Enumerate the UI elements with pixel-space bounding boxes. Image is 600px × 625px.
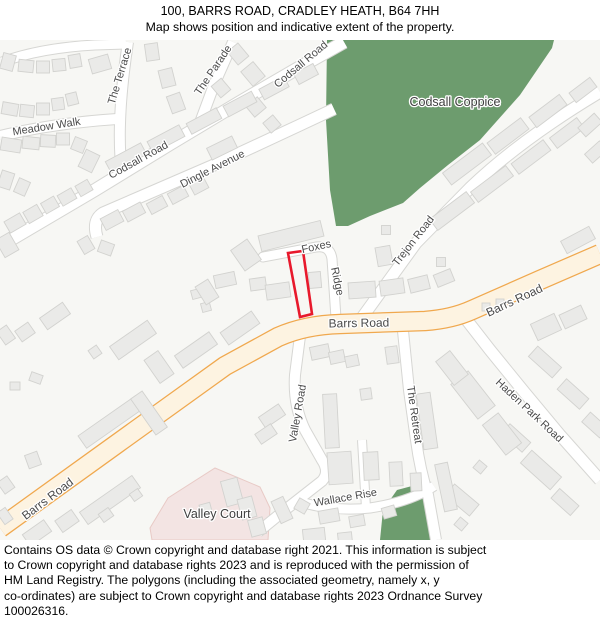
road-label-valley-court: Valley Court <box>183 507 251 521</box>
building <box>40 135 56 148</box>
page-subtitle: Map shows position and indicative extent… <box>0 19 600 35</box>
copyright-line: co-ordinates) are subject to Crown copyr… <box>4 589 596 604</box>
map-canvas: The TerraceThe ParadeMeadow WalkCodsall … <box>0 40 600 540</box>
building <box>22 136 40 150</box>
building <box>0 137 22 153</box>
building <box>302 527 325 540</box>
building <box>410 473 422 492</box>
building <box>51 97 65 111</box>
building <box>349 514 366 527</box>
building <box>328 350 345 365</box>
building <box>57 133 70 145</box>
building <box>144 43 159 62</box>
building <box>337 532 352 540</box>
building <box>379 278 405 296</box>
copyright-footer: Contains OS data © Crown copyright and d… <box>0 540 600 619</box>
building <box>344 354 359 367</box>
building <box>65 92 79 106</box>
building <box>308 272 321 289</box>
building <box>52 58 66 71</box>
report-header: 100, BARRS ROAD, CRADLEY HEATH, B64 7HH … <box>0 0 600 40</box>
building <box>10 382 20 390</box>
road-label-barrs-road: Barrs Road <box>328 315 389 330</box>
building <box>323 394 340 449</box>
building <box>375 245 393 266</box>
building <box>265 282 291 300</box>
building <box>1 102 19 117</box>
property-map-report: { "header": { "title": "100, BARRS ROAD,… <box>0 0 600 625</box>
road-label-codsall-coppice: Codsall Coppice <box>409 95 500 109</box>
street-map: The TerraceThe ParadeMeadow WalkCodsall … <box>0 40 600 540</box>
copyright-line: to Crown copyright and database rights 2… <box>4 558 596 573</box>
building <box>382 226 391 235</box>
building <box>348 281 376 299</box>
building <box>385 346 399 365</box>
building <box>389 462 403 487</box>
building <box>437 258 446 267</box>
building <box>360 388 372 400</box>
building <box>318 508 340 524</box>
building <box>363 452 379 481</box>
building <box>19 104 34 117</box>
building <box>68 54 82 69</box>
building <box>249 277 267 291</box>
copyright-line: Contains OS data © Crown copyright and d… <box>4 543 596 558</box>
page-title: 100, BARRS ROAD, CRADLEY HEATH, B64 7HH <box>0 3 600 19</box>
copyright-line: 100026316. <box>4 604 596 619</box>
building <box>327 451 353 485</box>
copyright-line: HM Land Registry. The polygons (includin… <box>4 573 596 588</box>
building <box>37 103 50 115</box>
building <box>18 59 34 73</box>
building <box>37 61 50 73</box>
